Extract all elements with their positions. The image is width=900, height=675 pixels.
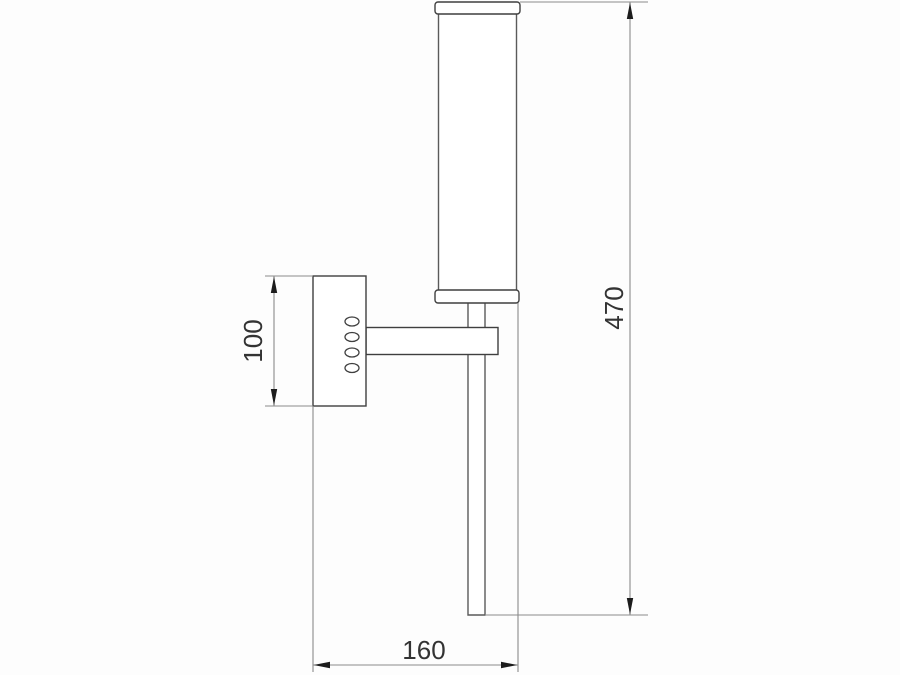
dimension-value-overall-height: 470 [599,286,629,329]
lamp-fixture [313,2,520,615]
arrowhead-right [501,662,518,668]
dimension-plate-height: 100 [238,276,313,406]
arrowhead-left [314,662,331,668]
arrowhead-down [627,598,633,615]
plate-slot [345,333,359,342]
drawing-canvas: 100 470 160 [0,0,900,675]
arrowhead-up [627,3,633,20]
arrowhead-down [271,389,277,406]
dimension-value-wall-projection: 160 [402,635,445,665]
shade-body [439,13,517,291]
technical-drawing: 100 470 160 [0,0,900,675]
plate-slot [345,348,359,357]
arrowhead-up [271,277,277,294]
mounting-arm [366,328,498,355]
plate-slot [345,364,359,373]
extension-lines [265,276,313,406]
dimension-value-plate-height: 100 [238,319,268,362]
wall-plate [313,276,366,406]
plate-slot [345,317,359,326]
shade-top-cap [435,2,520,14]
shade-bottom-cap [435,290,519,303]
